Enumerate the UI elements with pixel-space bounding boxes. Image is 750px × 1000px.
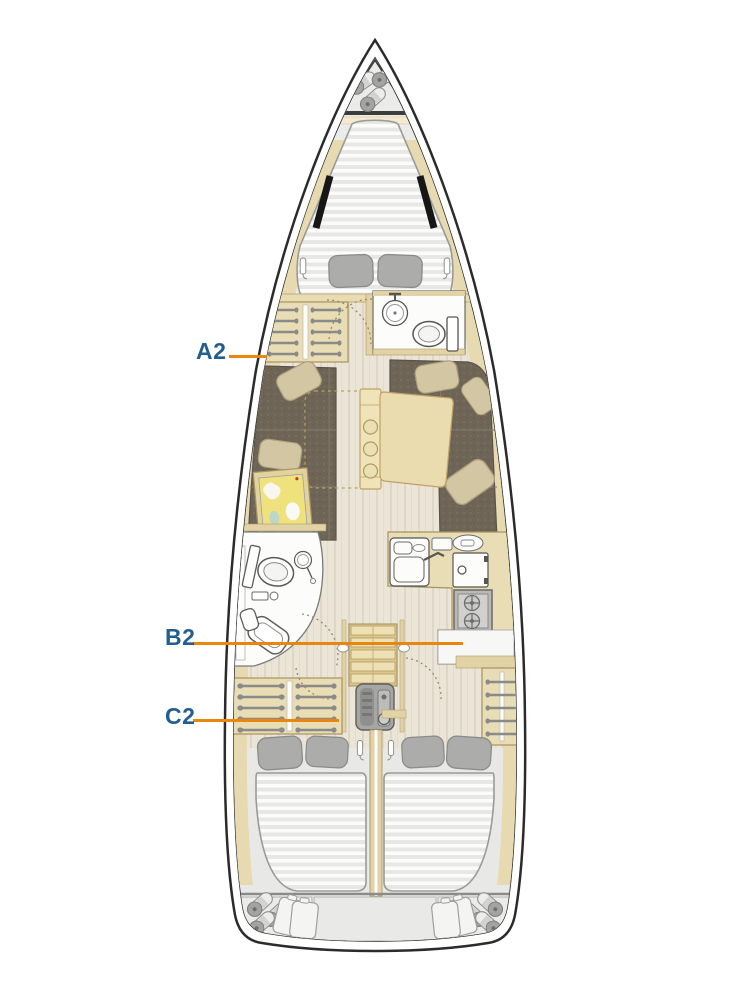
label-b2-text: B2 xyxy=(165,624,195,650)
stern-lockers xyxy=(238,889,512,941)
pillow-icon xyxy=(446,736,492,771)
aft-counter-starboard xyxy=(456,656,523,668)
aft-cabin-divider-gap xyxy=(375,730,378,896)
deck-fitting-icon xyxy=(399,644,410,652)
deck-plan-canvas: A2 B2 C2 xyxy=(0,0,750,1000)
drain-icon xyxy=(270,592,278,600)
tray-icon xyxy=(453,535,483,551)
berth-mattress xyxy=(384,773,494,891)
label-a2: A2 xyxy=(196,340,226,363)
stove-icon xyxy=(454,590,492,632)
shower-control-icon xyxy=(252,592,268,600)
forward-head xyxy=(366,291,465,355)
nautical-chart-icon xyxy=(259,474,308,532)
berth-mattress xyxy=(256,773,366,891)
cushion-icon xyxy=(289,897,319,939)
companionway-steps xyxy=(349,624,397,686)
bottle-holder-icon xyxy=(364,442,378,456)
bottle-holder-icon xyxy=(364,420,378,434)
pillow-icon xyxy=(377,254,422,288)
pillow-icon xyxy=(257,736,303,771)
label-c2-text: C2 xyxy=(165,703,195,729)
aft-wall-segment xyxy=(382,710,406,718)
label-a2-text: A2 xyxy=(196,338,226,364)
cutting-board-icon xyxy=(432,538,452,550)
pillow-icon xyxy=(328,254,373,288)
label-c2: C2 xyxy=(165,705,195,728)
deck-fitting-icon xyxy=(338,644,349,652)
a2-leader-line xyxy=(229,355,267,358)
label-b2: B2 xyxy=(165,626,195,649)
pillow-icon xyxy=(305,736,348,769)
pillow-icon xyxy=(401,736,444,769)
bottle-holder-icon xyxy=(364,464,378,478)
cushion-icon xyxy=(257,438,302,472)
yacht-deck-plan xyxy=(0,0,750,1000)
wardrobe-aft-port xyxy=(230,678,342,734)
engine-icon xyxy=(356,684,394,730)
c2-leader-line xyxy=(193,719,339,722)
b2-leader-line xyxy=(193,642,463,645)
fridge-icon xyxy=(453,553,488,587)
